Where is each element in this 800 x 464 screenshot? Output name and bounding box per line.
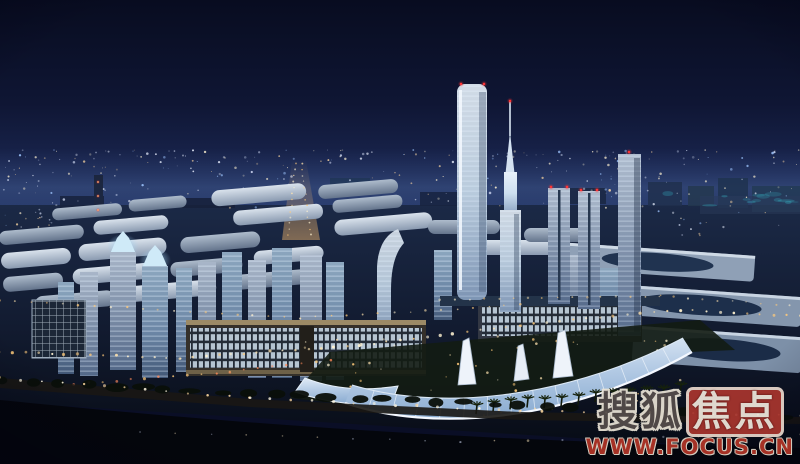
watermark-brand-part2: 焦点	[688, 390, 782, 434]
watermark-brand-part1: 搜狐	[598, 389, 684, 435]
sohu-focus-watermark: 搜狐焦点 WWW.FOCUS.CN	[585, 390, 794, 458]
watermark-url: WWW.FOCUS.CN	[585, 437, 794, 458]
watermark-brand: 搜狐焦点	[585, 390, 794, 434]
night-aerial-rendering: 搜狐焦点 WWW.FOCUS.CN	[0, 0, 800, 464]
